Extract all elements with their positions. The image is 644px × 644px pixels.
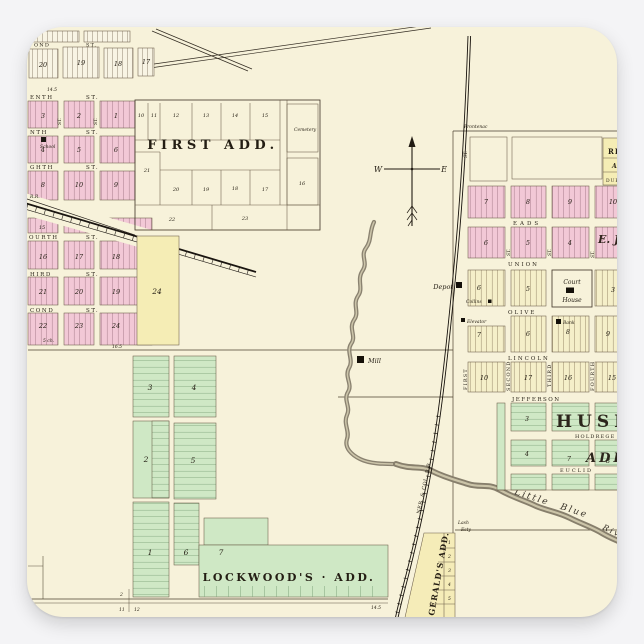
plat-map: OND ST. 20 19 18 17 14.5 ENTH ST. 3 2 1 … (27, 27, 617, 617)
section-number: 12 (134, 607, 140, 613)
compass-rose: W E (374, 136, 447, 226)
block-number: 3 (41, 112, 45, 120)
lot-number: 4 (447, 582, 451, 588)
addition-name-fragment: AD. (611, 163, 617, 170)
block-number: 9 (568, 198, 572, 206)
block-number: 4 (524, 450, 529, 458)
addition-title-fragment: E. J (597, 233, 617, 246)
court-house-label-2: House (561, 297, 582, 304)
owner-name: Lash (457, 520, 469, 526)
elevator-label: Elevator (466, 319, 487, 325)
street-label-holdrege: HOLDREGE (575, 434, 615, 440)
street-label-second: SECOND (506, 360, 512, 391)
compass-west-label: W (374, 165, 383, 174)
street-suffix: ST. (547, 249, 553, 256)
block-number: 5 (191, 456, 196, 465)
school-building-square (41, 137, 46, 142)
bank-building-square (556, 319, 561, 324)
school-label: School (40, 144, 56, 150)
mill-label: Mill (367, 357, 381, 365)
block-number: 9 (114, 181, 118, 189)
block-number: 18 (232, 186, 238, 192)
first-addition-block-lines (135, 100, 320, 230)
compass-east-label: E (440, 165, 447, 174)
ruler-mark: 14.5 (371, 605, 381, 611)
street-suffix: ST. (86, 130, 99, 136)
block-number: 6 (184, 548, 189, 557)
lot-number: 5 (448, 596, 451, 602)
block-number: 24 (151, 287, 162, 296)
first-addition-title: FIRST ADD. (147, 138, 278, 153)
court-house-label-1: Court (563, 279, 581, 286)
block-number: 11 (151, 113, 157, 119)
block-number: 18 (112, 253, 120, 261)
addition-name-fragment: RIC (608, 147, 617, 156)
block-number: 13 (203, 113, 209, 119)
elevator-building-square (461, 318, 465, 322)
block-number: 3 (525, 415, 529, 423)
block-number: 10 (480, 374, 488, 382)
block-number: 19 (77, 59, 85, 67)
section-number: 2 (119, 592, 123, 598)
street-label: OND (34, 43, 50, 49)
block-number: 15 (262, 113, 268, 119)
fitzgeralds-addition: 1 2 3 4 5 GERALD'S ADD. (399, 531, 455, 617)
block-number: 17 (262, 187, 269, 193)
block-number: 8 (41, 181, 45, 189)
huse-addition-add: ADD. (584, 451, 617, 466)
block-number: 6 (477, 284, 481, 292)
street-label: ENTH (30, 95, 54, 101)
block-number: 17 (524, 374, 533, 382)
block-number: 19 (112, 288, 120, 296)
owner-name: Esty (460, 527, 471, 533)
block-number: 4 (191, 383, 197, 392)
depot-marker: Depot (432, 282, 462, 291)
block-number: 10 (75, 181, 83, 189)
block-number: 6 (114, 146, 118, 154)
block-number: 8 (566, 328, 570, 336)
street-label: OURTH (29, 235, 59, 241)
block-number: 5 (526, 285, 530, 293)
street-name-fragment: DUF (606, 178, 617, 184)
map-sticker: OND ST. 20 19 18 17 14.5 ENTH ST. 3 2 1 … (27, 27, 617, 617)
block-number: 16 (39, 253, 47, 261)
block-number: 22 (168, 217, 175, 223)
street-suffix: ST. (86, 235, 99, 241)
block-number: 17 (75, 253, 84, 261)
street-label: NTH (30, 130, 48, 136)
block-number: 8 (526, 198, 530, 206)
depot-label: Depot (432, 283, 453, 291)
street-label-eads: EADS (513, 221, 541, 227)
block-number: 22 (38, 322, 47, 330)
block-number: 20 (172, 187, 180, 193)
left-town-pink-upper: ENTH ST. 3 2 1 NTH ST. 4 5 6 School GHTH… (28, 95, 135, 200)
block-number: 5 (526, 239, 530, 247)
block-number: 16 (299, 181, 306, 187)
mill-marker: Mill (357, 356, 381, 365)
block-number: 20 (38, 61, 47, 69)
block-number: 24 (111, 322, 120, 330)
street-suffix: ST. (86, 95, 99, 101)
street-suffix: ST. (463, 151, 469, 158)
street-suffix: ST. (590, 251, 596, 258)
block-number: 23 (74, 322, 83, 330)
ruler-mark: 14.5 (47, 87, 57, 93)
corner-note: 5 ch. (43, 338, 55, 344)
sticker-mockup-canvas: OND ST. 20 19 18 17 14.5 ENTH ST. 3 2 1 … (0, 0, 644, 644)
block-number: 4 (567, 239, 572, 247)
court-house-building-square (566, 288, 574, 294)
section-number: 11 (119, 607, 125, 613)
block-number: 21 (38, 288, 47, 296)
street-label-lincoln: LINCOLN (508, 356, 550, 362)
street-label-union: UNION (508, 262, 539, 268)
street-label-olive: OLIVE (508, 310, 536, 316)
block-number: 19 (203, 187, 210, 193)
lot-number: 3 (448, 568, 451, 574)
street-label-fourth: FOURTH (590, 361, 596, 391)
lot-number: 2 (447, 554, 451, 560)
street-label-third: THIRD (547, 364, 553, 387)
block-number: 10 (138, 113, 145, 119)
block-number: 9 (606, 330, 610, 338)
collins-label: Collins (466, 299, 482, 305)
street-label-jefferson: JEFFERSON (511, 397, 561, 403)
street-label-euclid: EUCLID (560, 468, 593, 474)
huse-addition: 3 4 7 8 HUSE HOLDREGE ADD. EUCLID (497, 403, 617, 490)
cemetery-label: Cemetery (294, 127, 317, 133)
lockwoods-addition-title: LOCKWOOD'S · ADD. (203, 571, 376, 584)
left-town-north-blocks: OND ST. 20 19 18 17 14.5 (29, 31, 154, 93)
street-suffix: ST. (86, 165, 99, 171)
street-label: GHTH (30, 165, 54, 171)
block-number: 10 (609, 198, 617, 206)
block-number: 3 (611, 286, 615, 294)
block-number: 3 (148, 383, 153, 392)
block-number: 1 (114, 112, 118, 120)
block-number: 12 (173, 113, 179, 119)
street-suffix: ST. (57, 118, 63, 125)
block-number: 7 (219, 548, 224, 557)
block-number: 16 (564, 374, 572, 382)
block-number: 17 (142, 58, 151, 66)
block-number: 20 (74, 288, 83, 296)
street-label-first: FIRST (463, 368, 469, 390)
bank-label: Bank (562, 320, 575, 326)
block-number: 15 (39, 225, 45, 231)
block-number: 14 (232, 113, 238, 119)
block-number: 6 (526, 330, 530, 338)
block-number: 5 (77, 146, 81, 154)
corner-owner-names: Lash Esty (457, 520, 471, 533)
building-square (488, 300, 492, 304)
block-number: 23 (241, 216, 248, 222)
block-number: 2 (143, 455, 149, 464)
first-addition: 10 11 12 13 14 15 Cemetery FIRST ADD. 21… (135, 100, 320, 230)
street-suffix: ST. (506, 249, 512, 256)
railroad-top-diagonals (140, 27, 431, 71)
block-number: 1 (148, 548, 153, 557)
railroad-note: R.R. (29, 194, 40, 200)
block-number: 18 (114, 60, 122, 68)
block-24-outlot: 24 (137, 236, 179, 345)
ruler-mark: 16.5 (112, 344, 122, 350)
block-number: 6 (484, 239, 488, 247)
block-number: 2 (76, 112, 81, 120)
street-suffix: ST. (93, 118, 99, 125)
huse-addition-title: HUSE (556, 412, 617, 432)
block-number: 21 (143, 168, 150, 174)
right-town: Frontenac RIC AD. DUF 7 8 9 10 EADS 6 5 … (453, 124, 617, 490)
block-number: 15 (608, 374, 616, 382)
